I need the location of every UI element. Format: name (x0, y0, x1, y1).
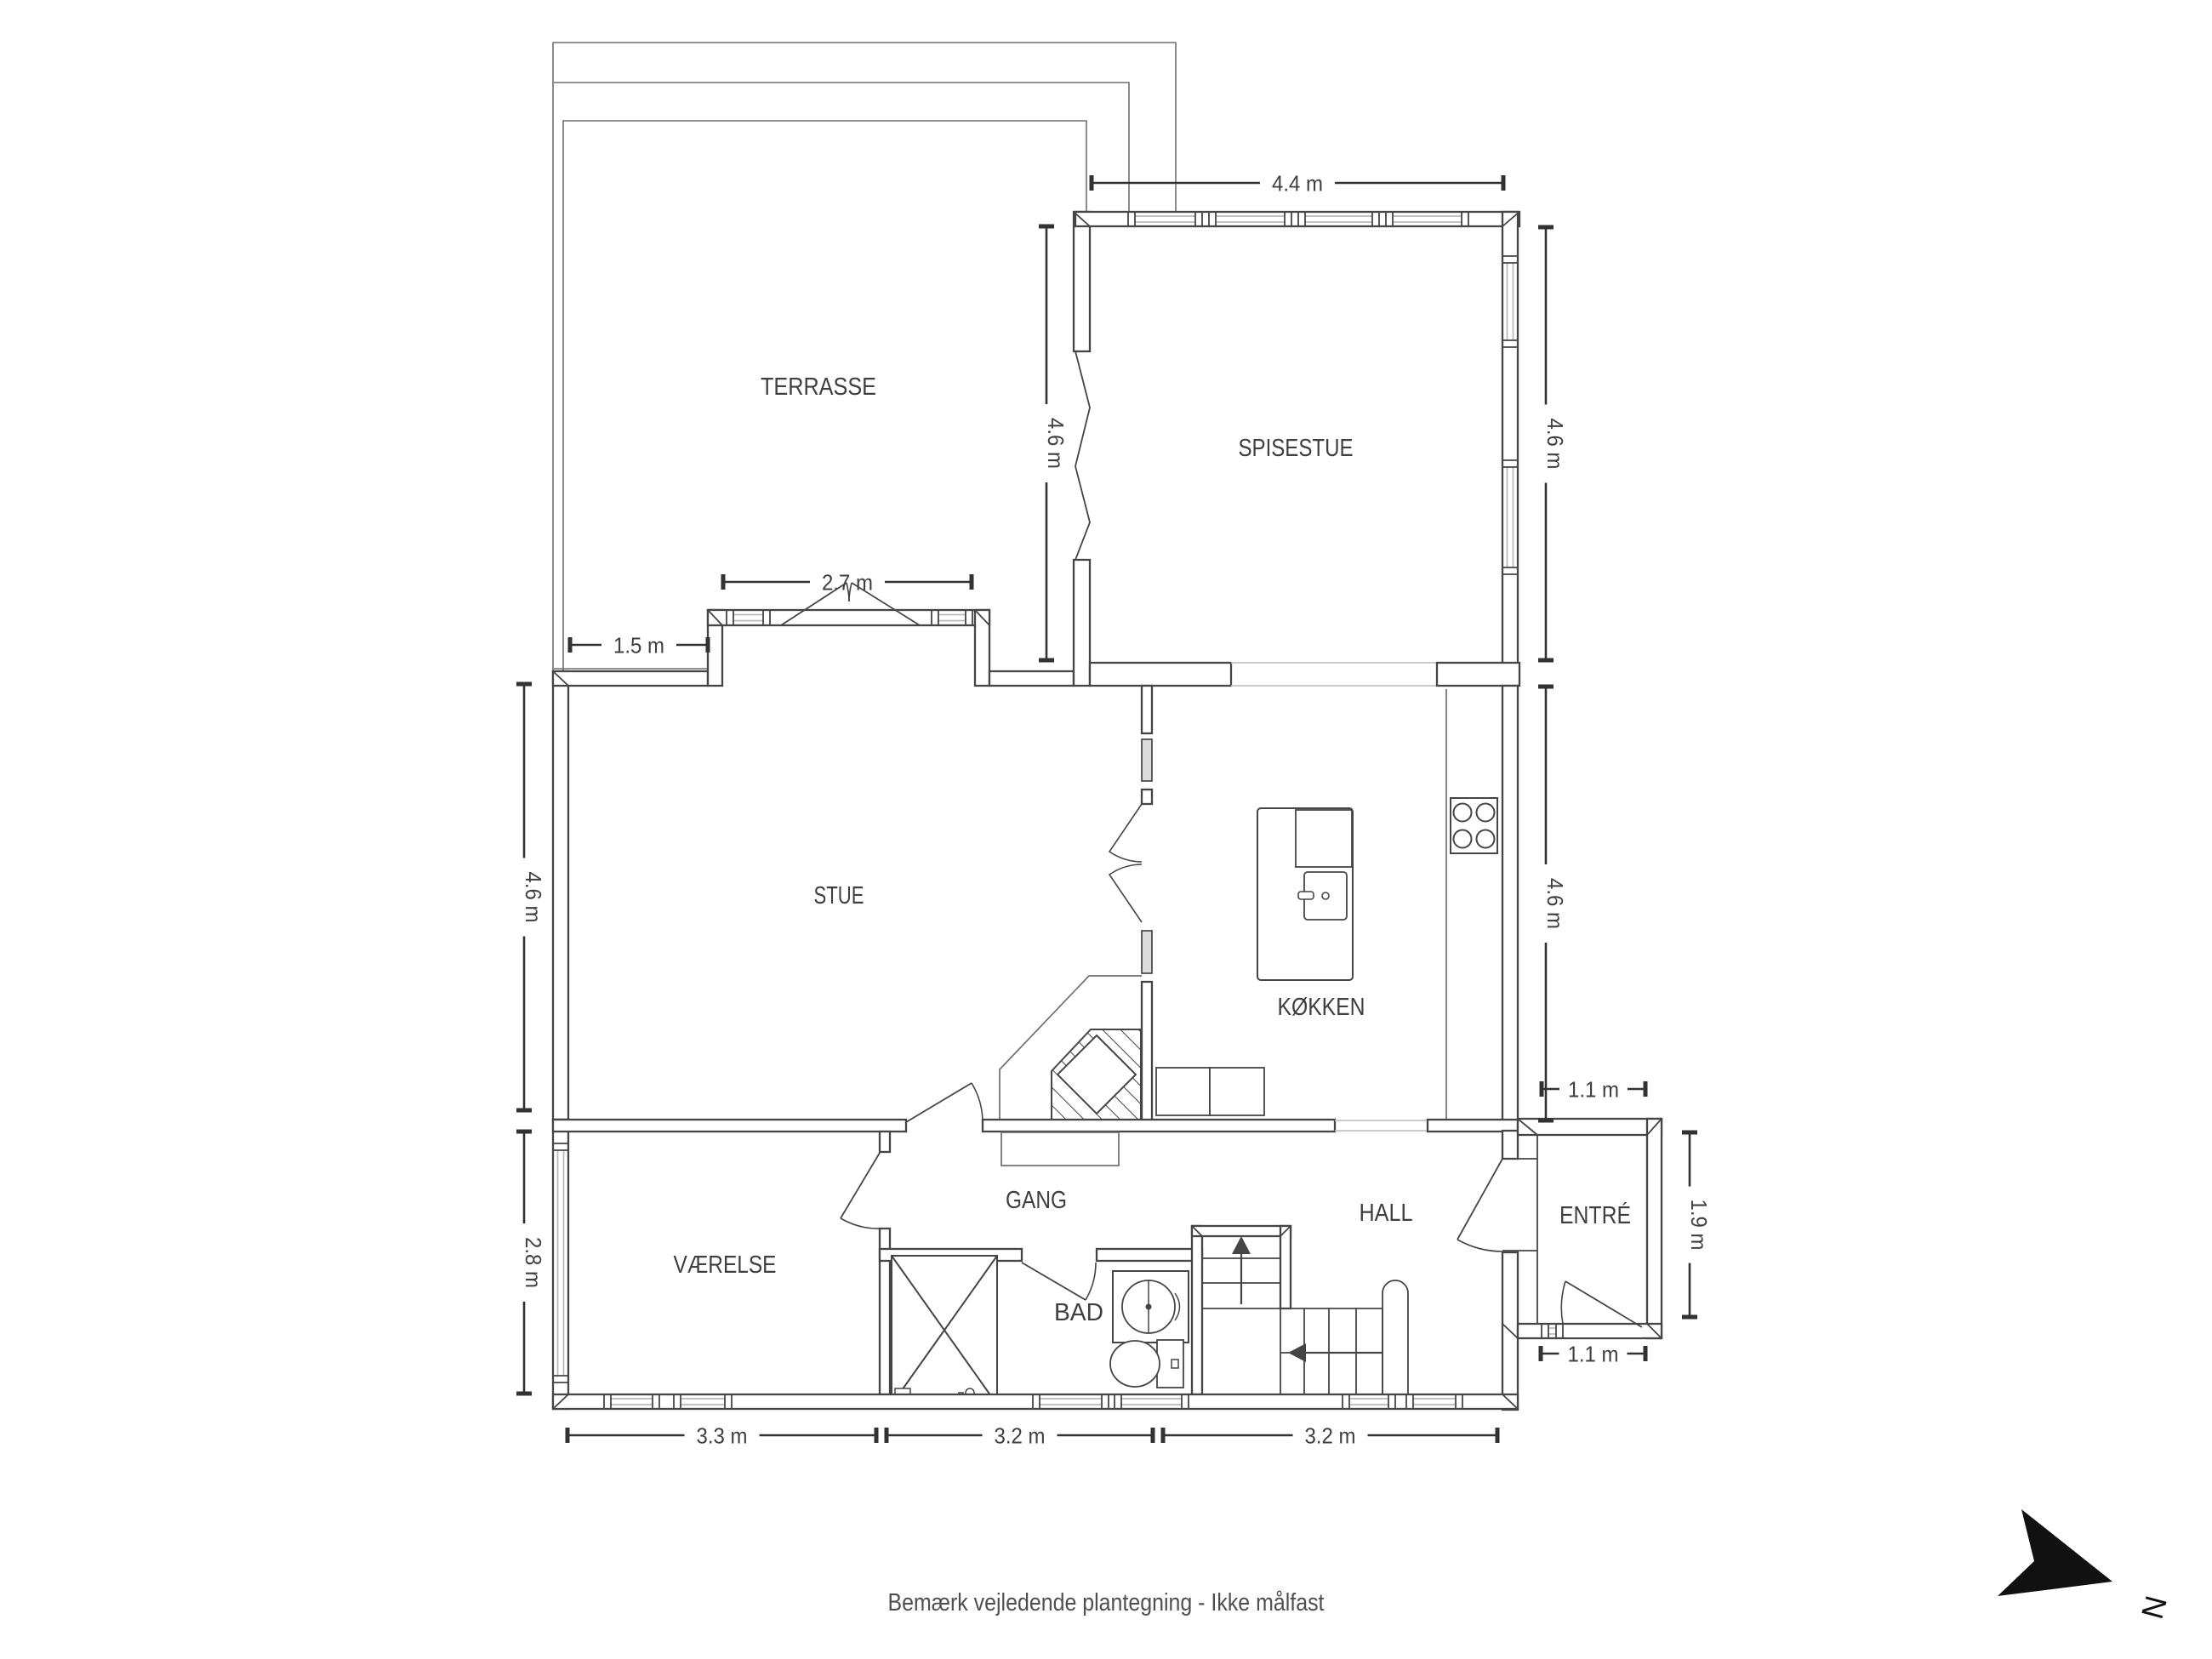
svg-text:KØKKEN: KØKKEN (1278, 994, 1365, 1021)
svg-text:VÆRELSE: VÆRELSE (674, 1251, 777, 1279)
svg-text:BAD: BAD (1054, 1299, 1103, 1326)
svg-text:2.7 m: 2.7 m (822, 570, 873, 596)
svg-text:4.6 m: 4.6 m (1542, 419, 1568, 470)
svg-text:4.6 m: 4.6 m (521, 872, 546, 923)
svg-text:3.2 m: 3.2 m (995, 1423, 1046, 1449)
svg-text:4.6 m: 4.6 m (1542, 878, 1568, 929)
svg-text:1.5 m: 1.5 m (613, 633, 664, 658)
svg-text:2.8 m: 2.8 m (521, 1237, 546, 1288)
svg-text:Bemærk vejledende plantegning: Bemærk vejledende plantegning - Ikke mål… (888, 1589, 1325, 1616)
svg-text:4.6 m: 4.6 m (1043, 418, 1069, 469)
svg-text:3.3 m: 3.3 m (697, 1423, 748, 1449)
svg-text:STUE: STUE (814, 882, 864, 909)
svg-text:ENTRÉ: ENTRÉ (1559, 1201, 1631, 1229)
svg-text:1.1 m: 1.1 m (1568, 1342, 1619, 1367)
svg-text:1.9 m: 1.9 m (1686, 1200, 1712, 1251)
svg-text:4.4 m: 4.4 m (1272, 171, 1323, 197)
svg-text:HALL: HALL (1360, 1200, 1413, 1227)
svg-text:1.1 m: 1.1 m (1568, 1077, 1619, 1103)
svg-text:GANG: GANG (1006, 1187, 1067, 1214)
svg-text:SPISESTUE: SPISESTUE (1239, 435, 1354, 462)
svg-text:TERRASSE: TERRASSE (761, 373, 876, 401)
svg-text:3.2 m: 3.2 m (1305, 1423, 1356, 1449)
